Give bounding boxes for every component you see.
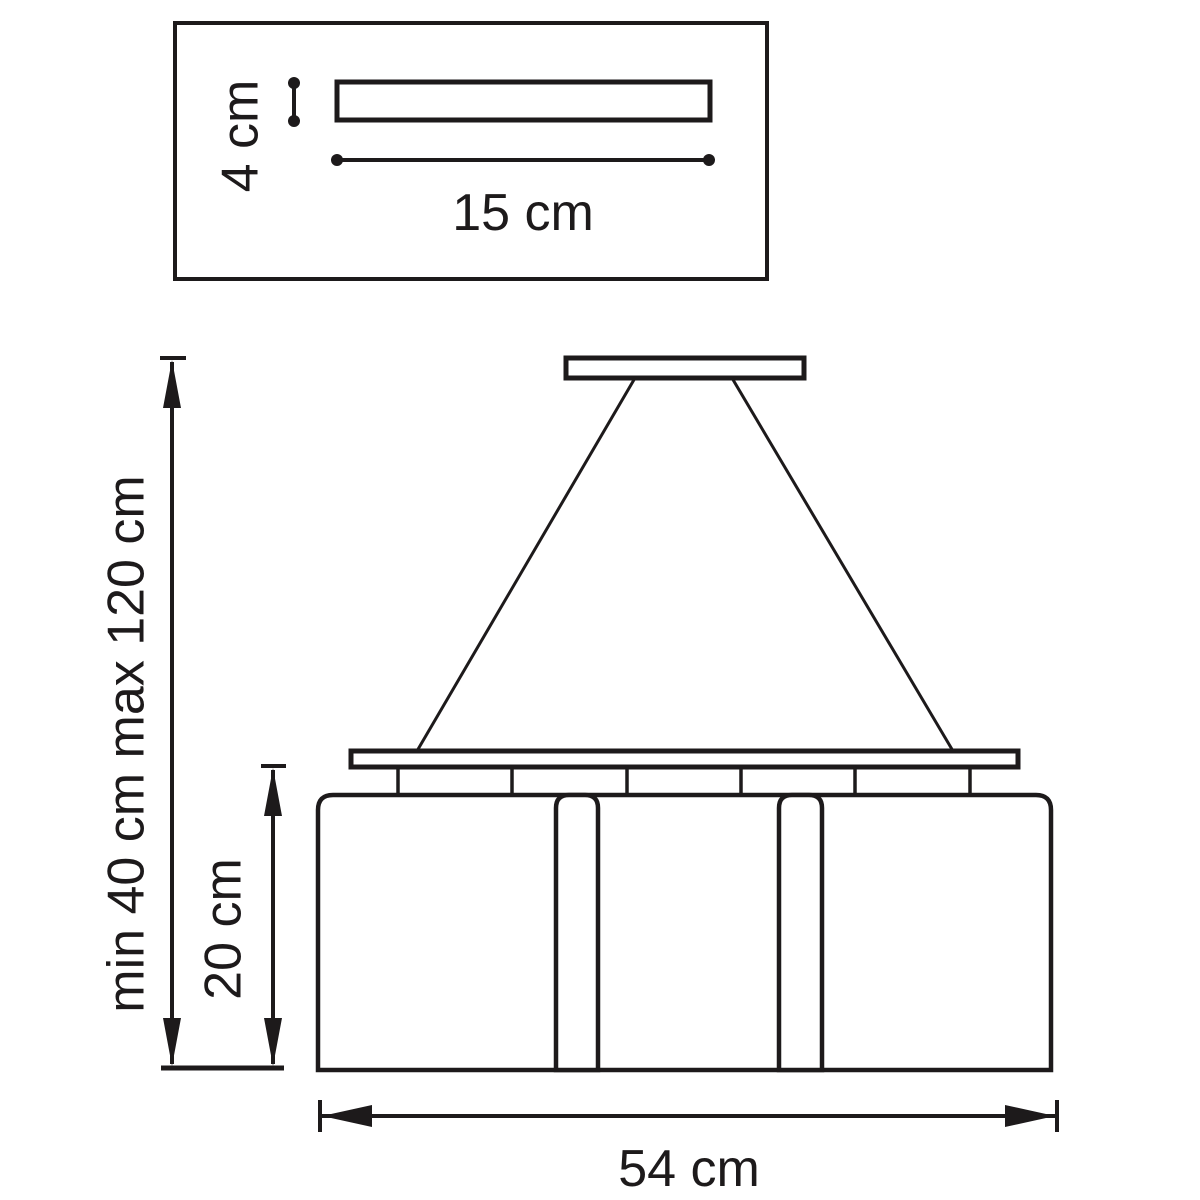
suspension-cable-right: [732, 378, 953, 751]
dimension-dot: [331, 154, 343, 166]
suspension-cable-left: [417, 378, 635, 751]
dimension-dot: [703, 154, 715, 166]
shade-tube-left: [556, 795, 598, 1070]
shade-tube-right: [779, 795, 822, 1070]
dimension-dot: [288, 77, 300, 89]
arrow-up-icon: [264, 768, 282, 816]
fixture-width-dimension: [320, 1100, 1057, 1132]
fixture-width-label: 54 cm: [618, 1140, 760, 1198]
arrow-left-icon: [322, 1105, 372, 1127]
arrow-down-icon: [264, 1018, 282, 1066]
canopy-height-label: 4 cm: [212, 80, 270, 193]
ring-bar: [351, 751, 1018, 767]
shade-height-label: 20 cm: [195, 858, 253, 1000]
canopy-height-dimension: [288, 77, 300, 127]
drawing-svg: 4 cm 15 cm: [0, 0, 1200, 1200]
canopy-width-dimension: [331, 154, 715, 166]
canopy-profile: [337, 82, 710, 120]
arrow-down-icon: [163, 1018, 181, 1066]
shade-body: [318, 795, 1051, 1070]
dimension-dot: [288, 115, 300, 127]
arrow-up-icon: [163, 360, 181, 408]
dimension-drawing: 4 cm 15 cm: [0, 0, 1200, 1200]
arrow-right-icon: [1005, 1105, 1055, 1127]
shade-stems: [398, 767, 970, 796]
ceiling-plate: [566, 358, 804, 378]
suspension-height-label: min 40 cm max 120 cm: [98, 475, 156, 1013]
canopy-width-label: 15 cm: [452, 184, 594, 242]
shade-height-dimension: [261, 766, 286, 1066]
